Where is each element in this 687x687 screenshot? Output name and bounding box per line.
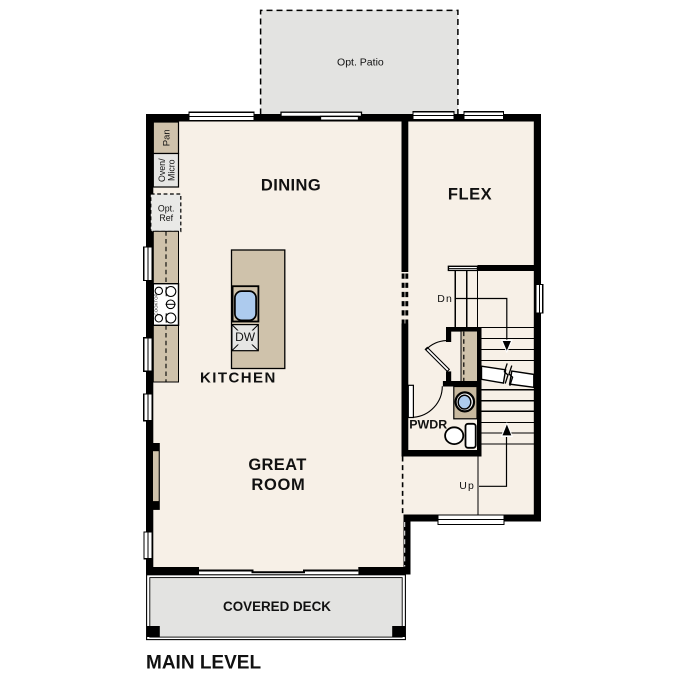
svg-text:Micro: Micro xyxy=(166,159,176,181)
svg-text:GREAT: GREAT xyxy=(248,456,306,474)
svg-text:FLEX: FLEX xyxy=(448,186,492,204)
svg-text:Oven/: Oven/ xyxy=(157,158,167,182)
svg-text:DINING: DINING xyxy=(261,176,321,194)
svg-text:Pan: Pan xyxy=(161,129,172,146)
svg-text:KITCHEN: KITCHEN xyxy=(200,369,277,386)
svg-text:Up: Up xyxy=(459,480,475,492)
svg-text:DW: DW xyxy=(235,330,256,344)
svg-text:Dn: Dn xyxy=(437,293,453,305)
svg-text:PWDR: PWDR xyxy=(409,418,447,432)
svg-text:COOKTOP: COOKTOP xyxy=(154,293,159,315)
svg-text:Ref: Ref xyxy=(159,213,173,223)
svg-text:Opt.: Opt. xyxy=(158,204,175,214)
svg-text:MAIN LEVEL: MAIN LEVEL xyxy=(146,653,261,674)
svg-text:Opt. Patio: Opt. Patio xyxy=(337,57,384,69)
svg-text:COVERED DECK: COVERED DECK xyxy=(223,599,331,614)
svg-text:ROOM: ROOM xyxy=(251,476,305,494)
